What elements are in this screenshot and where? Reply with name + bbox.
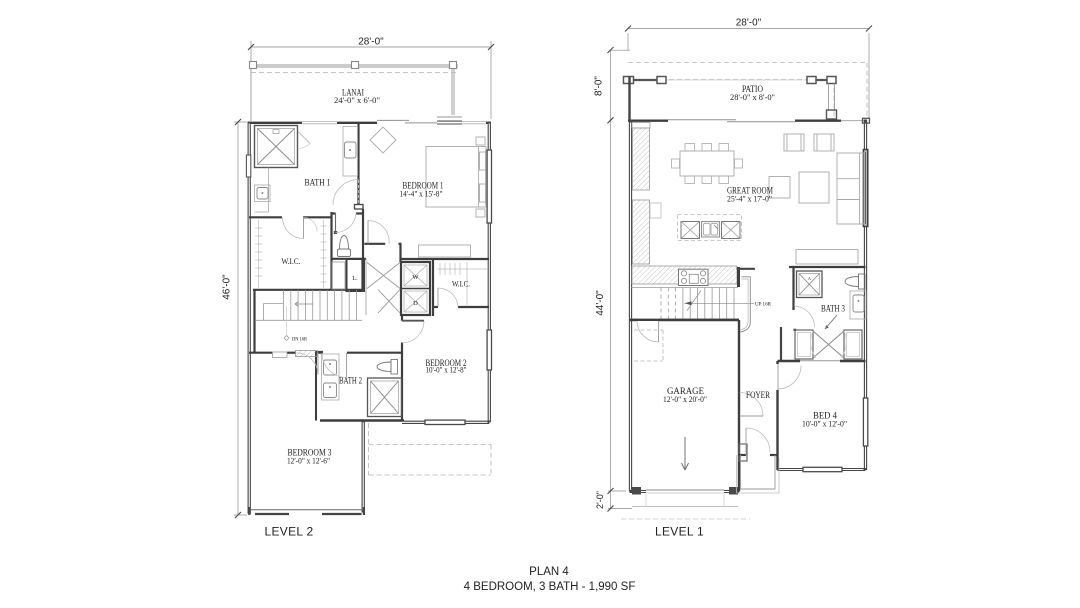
svg-text:14'-4" x 15'-8": 14'-4" x 15'-8" [400, 188, 443, 198]
svg-text:W: W [412, 274, 419, 281]
svg-text:D: D [413, 300, 418, 307]
svg-text:FOYER: FOYER [746, 390, 770, 400]
svg-text:46'-0": 46'-0" [222, 274, 233, 300]
svg-text:DN 16R: DN 16R [292, 337, 307, 343]
svg-text:UP 16R: UP 16R [755, 301, 771, 307]
svg-text:LEVEL 2: LEVEL 2 [264, 525, 313, 539]
svg-text:44'-0": 44'-0" [595, 290, 606, 316]
svg-text:25'-4" x 17'-0": 25'-4" x 17'-0" [727, 193, 772, 203]
svg-text:10'-0" x 12'-0": 10'-0" x 12'-0" [802, 419, 847, 429]
svg-text:2'-0": 2'-0" [595, 491, 605, 509]
svg-text:L.: L. [352, 275, 358, 282]
svg-text:A: A [808, 276, 811, 281]
svg-text:PLAN 4: PLAN 4 [529, 566, 569, 578]
svg-text:28'-0": 28'-0" [358, 37, 384, 48]
svg-text:12'-0" x 12'-6": 12'-0" x 12'-6" [287, 456, 330, 466]
svg-text:24'-0" x 6'-0": 24'-0" x 6'-0" [334, 95, 380, 105]
svg-text:28'-0": 28'-0" [736, 18, 762, 29]
svg-text:BATH 3: BATH 3 [821, 304, 845, 314]
svg-text:12'-0" x 20'-0": 12'-0" x 20'-0" [663, 394, 707, 404]
svg-text:W.I.C.: W.I.C. [282, 257, 301, 266]
svg-text:10'-0" x 12'-8": 10'-0" x 12'-8" [426, 365, 467, 375]
svg-text:4 BEDROOM, 3 BATH - 1,990 SF: 4 BEDROOM, 3 BATH - 1,990 SF [464, 581, 636, 593]
svg-text:8'-0": 8'-0" [594, 76, 605, 96]
svg-text:LEVEL 1: LEVEL 1 [655, 525, 704, 539]
svg-text:BATH 1: BATH 1 [305, 178, 331, 188]
svg-text:28'-0" x 8'-0": 28'-0" x 8'-0" [730, 92, 775, 102]
svg-text:W.I.C.: W.I.C. [452, 280, 470, 289]
